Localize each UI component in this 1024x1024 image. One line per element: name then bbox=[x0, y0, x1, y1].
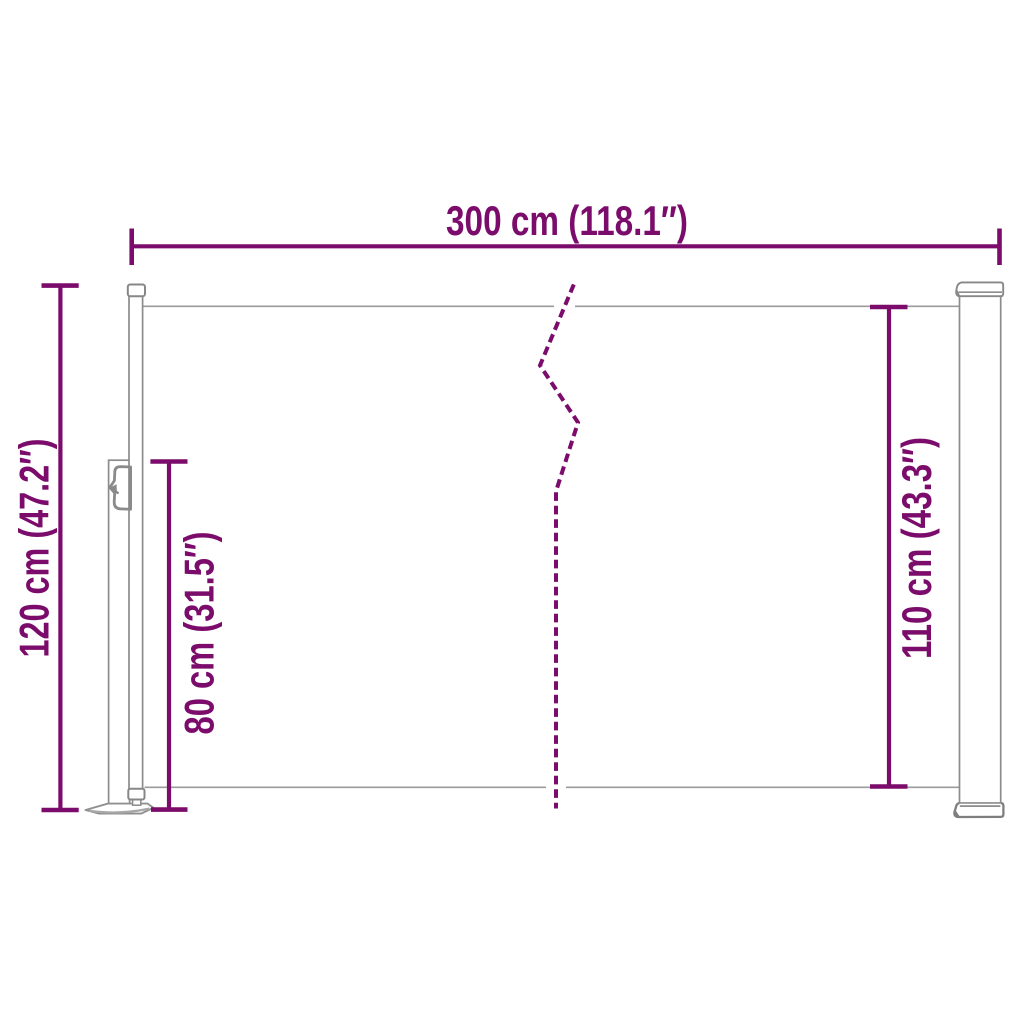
svg-text:120 cm (47.2″): 120 cm (47.2″) bbox=[11, 439, 58, 658]
svg-text:300 cm (118.1″): 300 cm (118.1″) bbox=[446, 197, 688, 244]
svg-text:110 cm (43.3″): 110 cm (43.3″) bbox=[893, 437, 940, 659]
svg-text:80 cm (31.5″): 80 cm (31.5″) bbox=[176, 532, 223, 735]
